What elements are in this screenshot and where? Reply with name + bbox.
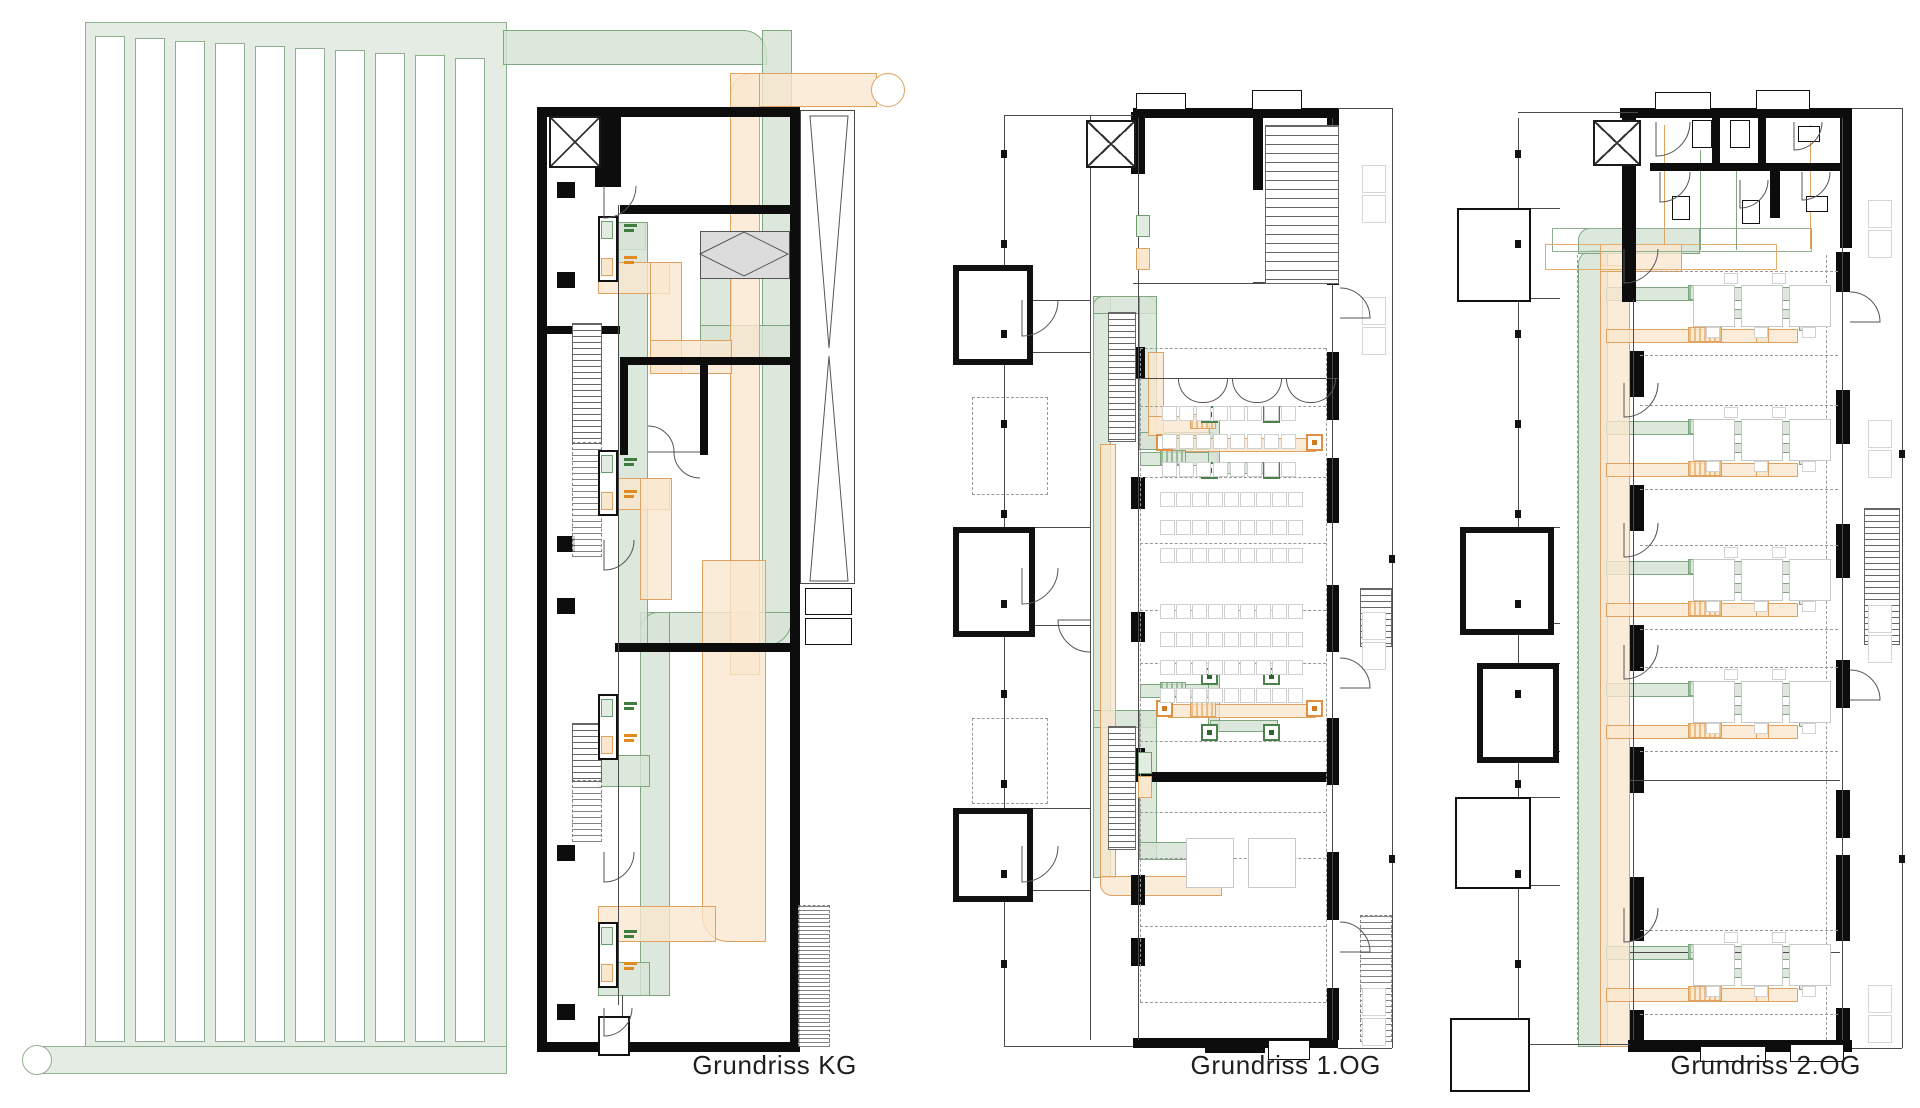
wall-thin-line (1004, 115, 1133, 116)
wall-segment (1836, 790, 1850, 838)
dashed-ceiling-line (1577, 255, 1579, 1040)
desk (1162, 406, 1177, 421)
annex-box (805, 618, 852, 645)
desk (1176, 632, 1191, 647)
window-tick (1001, 690, 1007, 698)
duct-supply (503, 30, 767, 65)
window-tick (1899, 450, 1905, 458)
desk (1256, 660, 1271, 675)
desk (1288, 688, 1303, 703)
vent-unit-supply-slot (601, 455, 613, 473)
flow-label-supply (624, 930, 637, 933)
desk (1208, 660, 1223, 675)
wall-riser-slot (1138, 776, 1152, 798)
work-table (1248, 838, 1296, 888)
group-table (1789, 419, 1831, 461)
dashed-ceiling-line (1826, 255, 1828, 1040)
desk (1192, 520, 1207, 535)
flow-label-extract (624, 261, 634, 264)
wall-segment (557, 182, 575, 198)
ramp-triangle (810, 116, 848, 348)
wall-thin-line (1004, 1046, 1133, 1047)
wall-segment (1327, 988, 1339, 1040)
dashed-projection-box (972, 718, 1048, 804)
duct-extract (1600, 265, 1630, 1047)
collector-slot (375, 53, 405, 1042)
desk (1281, 462, 1296, 477)
exhaust-outlet-cap (871, 73, 905, 107)
desk (1247, 406, 1262, 421)
extract-diffuser-icon (1306, 700, 1323, 717)
desk (1264, 462, 1279, 477)
wall-segment (557, 272, 575, 288)
desk (1176, 604, 1191, 619)
desk (1176, 688, 1191, 703)
desk (1192, 548, 1207, 563)
wall-segment (557, 598, 575, 614)
flow-label-supply (624, 229, 634, 232)
dashed-ceiling-line (1640, 489, 1838, 491)
chair (1772, 407, 1786, 418)
wardrobe-arc (1232, 378, 1282, 403)
dashed-ceiling-line (1640, 629, 1838, 631)
chair (1772, 547, 1786, 558)
wall-thin-line (1338, 1048, 1392, 1049)
wall-segment (557, 845, 575, 861)
annex-box (1730, 120, 1750, 148)
flow-label-supply (624, 458, 637, 461)
wall-thin-line (1527, 885, 1560, 886)
wall-riser-slot (1138, 752, 1152, 774)
wall-segment (615, 643, 793, 652)
group-table (1741, 419, 1783, 461)
collector-slot (335, 50, 365, 1042)
heat-exchanger-unit (700, 231, 790, 279)
window-tick (1515, 780, 1521, 788)
desk (1256, 548, 1271, 563)
window-tick (1001, 870, 1007, 878)
desk (1256, 492, 1271, 507)
chair (1802, 601, 1816, 612)
wall-segment (1712, 108, 1720, 163)
window-tick (1515, 420, 1521, 428)
flex-connector (1190, 702, 1216, 717)
desk (1192, 604, 1207, 619)
group-table (1789, 559, 1831, 601)
desk (1208, 548, 1223, 563)
chair (1802, 327, 1816, 338)
desk (1240, 604, 1255, 619)
desk (1281, 406, 1296, 421)
desk (1256, 688, 1271, 703)
window-tick (1515, 870, 1521, 878)
staircase (572, 323, 602, 444)
desk (1176, 492, 1191, 507)
wall-segment (1770, 163, 1780, 218)
wall-thin-line (1527, 208, 1560, 209)
annex-box (805, 588, 852, 615)
desk (1240, 492, 1255, 507)
dashed-ceiling-line (1326, 348, 1328, 1002)
wardrobe-arc (1178, 378, 1228, 403)
desk (1208, 632, 1223, 647)
desk (1240, 632, 1255, 647)
chair (1724, 932, 1738, 943)
dashed-ceiling-line (1140, 348, 1142, 1002)
annex-box (1692, 120, 1712, 148)
desk (1213, 434, 1228, 449)
chair (1724, 669, 1738, 680)
wall-segment (1327, 852, 1339, 920)
dashed-ceiling-line (1140, 926, 1326, 928)
desk (1240, 520, 1255, 535)
annex-box (1450, 1018, 1530, 1092)
chair (1754, 986, 1768, 997)
desk (1224, 548, 1239, 563)
dashed-ceiling-line (1140, 348, 1326, 350)
caption-grundriss-2og: Grundriss 2.OG (1541, 1050, 1861, 1081)
wall-segment (1836, 390, 1850, 444)
wall-thin-line (1633, 300, 1634, 1040)
chair (1802, 986, 1816, 997)
flow-label-extract (624, 734, 637, 737)
balcony-furniture (1362, 642, 1386, 670)
vent-unit-extract-slot (601, 736, 613, 754)
staircase (572, 780, 602, 842)
wall-thin-line (1902, 108, 1903, 1048)
wall-thin-line (800, 110, 801, 583)
caption-grundriss-1og: Grundriss 1.OG (1061, 1050, 1381, 1081)
window-tick (1001, 240, 1007, 248)
wall-thin-line (1518, 112, 1638, 113)
annex-box (1672, 196, 1690, 220)
desk (1224, 660, 1239, 675)
group-table (1693, 419, 1735, 461)
chair (1724, 273, 1738, 284)
flow-label-supply (624, 935, 634, 938)
desk (1160, 548, 1175, 563)
wall-segment (1836, 855, 1850, 941)
desk (1208, 604, 1223, 619)
window-tick (1515, 960, 1521, 968)
chair (1706, 327, 1720, 338)
desk (1230, 434, 1245, 449)
wall-thin-line (854, 110, 855, 583)
balcony-furniture (1362, 988, 1386, 1016)
vent-unit-supply-slot (601, 699, 613, 717)
annex-box (1252, 90, 1302, 110)
group-table (1741, 559, 1783, 601)
desk (1240, 660, 1255, 675)
collector-slot (95, 36, 125, 1042)
desk (1288, 604, 1303, 619)
desk (1213, 462, 1228, 477)
desk (1247, 462, 1262, 477)
balcony-furniture (1362, 1018, 1386, 1046)
flow-label-supply (624, 702, 637, 705)
desk (1224, 520, 1239, 535)
dashed-ceiling-line (1640, 405, 1838, 407)
door-arc (648, 426, 674, 452)
desk (1272, 632, 1287, 647)
dashed-ceiling-line (1140, 543, 1326, 545)
group-table (1741, 681, 1783, 723)
wall-thin-line (1527, 298, 1560, 299)
wall-thin-line (1090, 300, 1091, 1040)
caption-grundriss-kg: Grundriss KG (537, 1050, 857, 1081)
window-tick (1389, 855, 1395, 863)
desk (1288, 632, 1303, 647)
wall-thin-line (1630, 780, 1840, 781)
desk (1264, 434, 1279, 449)
group-table (1693, 681, 1735, 723)
flow-label-supply (624, 707, 634, 710)
annex-box (1806, 196, 1828, 212)
dashed-ceiling-line (1640, 545, 1838, 547)
annex-box (1460, 527, 1554, 635)
annex-box (1477, 663, 1559, 763)
desk (1256, 632, 1271, 647)
desk (1272, 604, 1287, 619)
wall-segment (1836, 660, 1850, 708)
desk (1160, 492, 1175, 507)
desk (1160, 520, 1175, 535)
dashed-ceiling-line (1140, 812, 1326, 814)
desk (1272, 548, 1287, 563)
window-tick (1515, 240, 1521, 248)
wall-segment (620, 205, 800, 214)
desk (1176, 548, 1191, 563)
elevator-shaft-icon (1593, 120, 1641, 166)
balcony-furniture (1868, 450, 1892, 478)
desk (1208, 492, 1223, 507)
desk (1288, 548, 1303, 563)
group-table (1741, 285, 1783, 327)
chair (1754, 327, 1768, 338)
dashed-projection-box (972, 397, 1048, 495)
flow-label-extract (624, 495, 634, 498)
annex-box (1457, 208, 1531, 302)
balcony-furniture (1868, 985, 1892, 1013)
desk (1176, 520, 1191, 535)
balcony-furniture (1868, 605, 1892, 633)
wall-thin-line (1392, 108, 1393, 1048)
desk (1196, 434, 1211, 449)
desk (1256, 520, 1271, 535)
desk (1247, 434, 1262, 449)
desk (1224, 492, 1239, 507)
wall-riser-slot (1136, 215, 1150, 237)
vent-unit-extract-slot (601, 964, 613, 982)
dashed-ceiling-line (1140, 477, 1326, 479)
desk (1240, 688, 1255, 703)
chair (1772, 669, 1786, 680)
desk (1272, 688, 1287, 703)
wall-segment (1327, 718, 1339, 785)
wall-thin-line (1518, 1044, 1630, 1045)
group-table (1693, 559, 1735, 601)
flow-label-extract (624, 962, 637, 965)
desk (1179, 462, 1194, 477)
desk (1272, 660, 1287, 675)
desk (1224, 604, 1239, 619)
work-table (1186, 838, 1234, 888)
dashed-ceiling-line (1640, 271, 1838, 273)
desk (1288, 520, 1303, 535)
desk (1224, 688, 1239, 703)
annex-box (1136, 93, 1186, 110)
window-tick (1001, 510, 1007, 518)
collector-slot (215, 43, 245, 1042)
window-tick (1001, 780, 1007, 788)
door-arc (1656, 122, 1690, 156)
balcony-furniture (1868, 420, 1892, 448)
wall-segment (1836, 1008, 1850, 1042)
desk (1272, 492, 1287, 507)
desk (1224, 632, 1239, 647)
door-arc (1850, 292, 1880, 322)
wall-segment (700, 357, 708, 455)
duct-extract (640, 478, 672, 600)
desk (1196, 406, 1211, 421)
chair (1706, 986, 1720, 997)
chair (1772, 932, 1786, 943)
vent-unit-extract-slot (601, 258, 613, 276)
chair (1706, 461, 1720, 472)
desk (1162, 462, 1177, 477)
flow-label-extract (624, 739, 634, 742)
annex-box (953, 808, 1033, 902)
collector-slot (295, 48, 325, 1042)
desk (1281, 434, 1296, 449)
extract-diffuser-icon (1306, 434, 1323, 451)
wall-thin-line (1842, 118, 1843, 1040)
supply-diffuser-icon (1201, 724, 1218, 741)
wall-riser-slot (1136, 248, 1150, 270)
balcony-furniture (1362, 612, 1386, 640)
desk (1179, 406, 1194, 421)
chair (1754, 723, 1768, 734)
window-tick (1515, 510, 1521, 518)
wall-segment (1253, 108, 1263, 190)
flow-label-extract (624, 967, 634, 970)
flow-label-supply (624, 224, 637, 227)
desk (1213, 406, 1228, 421)
desk (1288, 660, 1303, 675)
desk (1192, 492, 1207, 507)
wall-segment (1327, 585, 1339, 652)
desk (1160, 604, 1175, 619)
riser-line (1736, 170, 1737, 250)
door-arc (604, 852, 634, 882)
desk (1256, 604, 1271, 619)
duct-extract (702, 560, 766, 942)
balcony-furniture (1868, 230, 1892, 258)
wall-thin-line (1527, 797, 1560, 798)
wall-segment (1836, 524, 1850, 578)
dashed-ceiling-line (1640, 355, 1838, 357)
window-tick (1001, 150, 1007, 158)
sheet: Grundriss KG Grundriss 1.OG Grundriss 2.… (0, 0, 1920, 1108)
vent-unit-supply-slot (601, 221, 613, 239)
window-tick (1515, 600, 1521, 608)
window-tick (1001, 960, 1007, 968)
annex-box (1756, 90, 1810, 110)
group-table (1693, 944, 1735, 986)
dashed-ceiling-line (1640, 751, 1838, 753)
group-table (1789, 285, 1831, 327)
desk (1192, 632, 1207, 647)
door-arc (1850, 670, 1880, 700)
desk (1192, 660, 1207, 675)
desk (1230, 406, 1245, 421)
desk (1160, 660, 1175, 675)
annex-box (1655, 92, 1711, 110)
window-tick (1001, 330, 1007, 338)
wall-thin-line (1852, 1048, 1902, 1049)
chair (1772, 273, 1786, 284)
supply-diffuser-icon (1263, 724, 1280, 741)
dashed-ceiling-line (1640, 930, 1838, 932)
chair (1802, 461, 1816, 472)
group-table (1741, 944, 1783, 986)
desk (1272, 520, 1287, 535)
flow-label-supply (624, 463, 634, 466)
annex-box (953, 265, 1033, 365)
wall-segment (1650, 163, 1850, 171)
window-tick (1515, 690, 1521, 698)
balcony-furniture (1362, 327, 1386, 355)
collector-intake-cap (22, 1045, 52, 1075)
balcony-furniture (1868, 200, 1892, 228)
dashed-ceiling-line (1640, 1014, 1838, 1016)
balcony-furniture (1362, 195, 1386, 223)
desk (1208, 688, 1223, 703)
wall-segment (620, 357, 628, 455)
wall-thin-line (1852, 108, 1902, 109)
chair (1706, 601, 1720, 612)
dashed-ceiling-line (1140, 1002, 1326, 1004)
desk (1162, 434, 1177, 449)
chair (1724, 407, 1738, 418)
annex-box (1742, 200, 1760, 224)
group-table (1789, 944, 1831, 986)
collector-slot (175, 41, 205, 1042)
chair (1754, 601, 1768, 612)
window-tick (1899, 855, 1905, 863)
window-tick (1515, 330, 1521, 338)
wall-segment (537, 107, 547, 1052)
window-tick (1001, 420, 1007, 428)
chair (1802, 723, 1816, 734)
staircase (1108, 312, 1136, 442)
window-tick (1515, 150, 1521, 158)
wall-segment (1327, 458, 1339, 523)
chair (1724, 547, 1738, 558)
collector-slot (255, 46, 285, 1042)
desk (1179, 434, 1194, 449)
window-tick (1389, 555, 1395, 563)
dashed-ceiling-line (1140, 741, 1326, 743)
desk (1288, 492, 1303, 507)
wall-segment (1836, 252, 1850, 292)
balcony-furniture (1868, 635, 1892, 663)
desk (1196, 462, 1211, 477)
vent-unit-supply-slot (601, 927, 613, 945)
dashed-ceiling-line (1640, 667, 1838, 669)
wall-segment (557, 1004, 575, 1020)
desk (1176, 660, 1191, 675)
